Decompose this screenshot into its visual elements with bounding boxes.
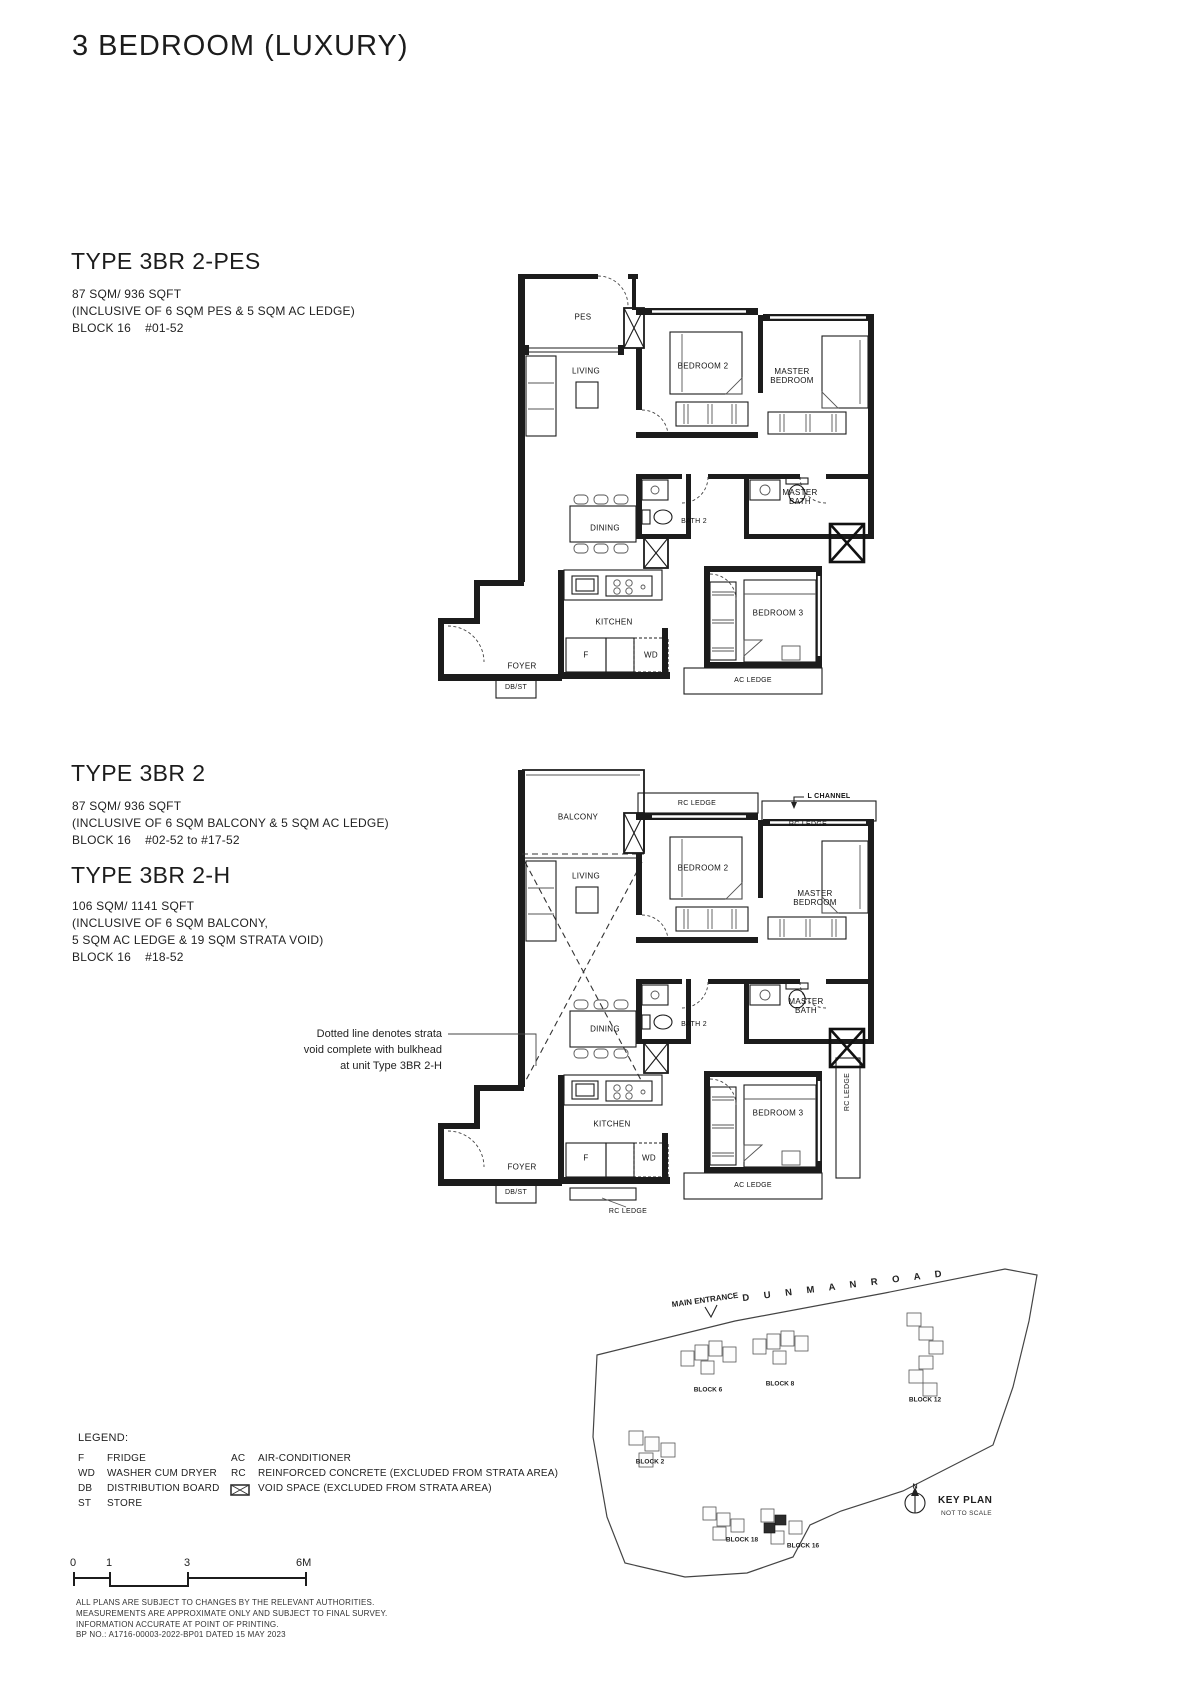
disclaimer-line-3: INFORMATION ACCURATE AT POINT OF PRINTIN… (76, 1620, 387, 1631)
plan1-room-bedroom3: BEDROOM 3 (753, 608, 804, 617)
plan2-room-bedroom2: BEDROOM 2 (678, 863, 729, 872)
plan2-room-living: LIVING (572, 871, 600, 880)
plan1-room-master-bath: MASTER BATH (778, 488, 822, 506)
floorplan-page: { "title": "3 BEDROOM (LUXURY)", "types"… (0, 0, 1190, 1684)
type3-area: 106 SQM/ 1141 SQFT (72, 898, 323, 915)
keyplan-block12-buildings (907, 1313, 943, 1396)
type3-inclusive-1: (INCLUSIVE OF 6 SQM BALCONY, (72, 915, 323, 932)
legend-abbr-st: ST (78, 1498, 91, 1509)
keyplan-block16-label: BLOCK 16 (787, 1543, 819, 1550)
keyplan-block12-label: BLOCK 12 (909, 1397, 941, 1404)
legend-term-fridge: FRIDGE (107, 1453, 146, 1464)
disclaimer-line-1: ALL PLANS ARE SUBJECT TO CHANGES BY THE … (76, 1598, 387, 1609)
plan2-room-master-bath: MASTER BATH (784, 997, 828, 1015)
void-space-icon (230, 1484, 250, 1496)
keyplan-block2-label: BLOCK 2 (636, 1459, 665, 1466)
legend-term-store: STORE (107, 1498, 142, 1509)
legend-heading: LEGEND: (78, 1432, 128, 1444)
scale-tick-0: 0 (70, 1557, 76, 1569)
plan1-room-bath2: BATH 2 (681, 518, 707, 526)
scale-tick-1: 1 (106, 1557, 112, 1569)
floorplan-type-3br2-drawing (430, 706, 890, 1221)
keyplan-block16-buildings (761, 1509, 802, 1544)
plan2-fridge-label: F (583, 1153, 588, 1162)
plan2-rc-ledge-bottom-label: RC LEDGE (609, 1208, 647, 1216)
keyplan-highlighted-unit (775, 1515, 786, 1525)
keyplan-note: NOT TO SCALE (941, 1510, 992, 1517)
legend-abbr-f: F (78, 1453, 84, 1464)
page-title: 3 BEDROOM (LUXURY) (72, 30, 409, 63)
legend-term-ac: AIR-CONDITIONER (258, 1453, 351, 1464)
plan2-room-balcony: BALCONY (558, 812, 598, 821)
type2-inclusive: (INCLUSIVE OF 6 SQM BALCONY & 5 SQM AC L… (72, 815, 389, 832)
plan1-room-foyer: FOYER (507, 661, 536, 670)
plan2-rc-ledge-right-label: RC LEDGE (789, 821, 827, 829)
type1-area: 87 SQM/ 936 SQFT (72, 286, 355, 303)
floorplan-type-3br2pes-drawing (430, 236, 890, 706)
plan1-wd-label: WD (644, 650, 658, 659)
type2-block-stack: BLOCK 16 #02-52 to #17-52 (72, 832, 389, 849)
type1-details: 87 SQM/ 936 SQFT (INCLUSIVE OF 6 SQM PES… (72, 286, 355, 337)
legend-abbr-rc: RC (231, 1468, 246, 1479)
plan1-room-pes: PES (575, 312, 592, 321)
type3-heading: TYPE 3BR 2-H (71, 862, 230, 889)
plan1-fridge-label: F (583, 650, 588, 659)
plan1-room-living: LIVING (572, 366, 600, 375)
plan2-room-kitchen: KITCHEN (593, 1119, 630, 1128)
scalebar-drawing (70, 1570, 320, 1594)
keyplan-block18-buildings (703, 1507, 744, 1540)
legend-abbr-ac: AC (231, 1453, 245, 1464)
legend-term-void: VOID SPACE (EXCLUDED FROM STRATA AREA) (258, 1483, 492, 1494)
plan2-room-bedroom3: BEDROOM 3 (753, 1108, 804, 1117)
plan1-room-dining: DINING (590, 523, 620, 532)
keyplan-block8-buildings (753, 1331, 808, 1364)
type2-heading: TYPE 3BR 2 (71, 760, 205, 787)
legend-abbr-wd: WD (78, 1468, 95, 1479)
keyplan-block8-label: BLOCK 8 (766, 1381, 795, 1388)
plan1-room-master-bedroom: MASTER BEDROOM (764, 367, 820, 385)
plan2-room-master-bedroom: MASTER BEDROOM (787, 889, 843, 907)
plan2-rc-ledge-side-label: RC LEDGE (844, 1073, 852, 1111)
plan2-ac-ledge-label: AC LEDGE (734, 1182, 772, 1190)
plan1-dbst-label: DB/ST (505, 684, 527, 692)
type1-heading: TYPE 3BR 2-PES (71, 248, 261, 275)
disclaimer-line-2: MEASUREMENTS ARE APPROXIMATE ONLY AND SU… (76, 1609, 387, 1620)
keyplan-block6-label: BLOCK 6 (694, 1387, 723, 1394)
plan1-room-bedroom2: BEDROOM 2 (678, 361, 729, 370)
plan2-room-foyer: FOYER (507, 1162, 536, 1171)
plan2-dbst-label: DB/ST (505, 1189, 527, 1197)
scale-tick-3: 3 (184, 1557, 190, 1569)
type3-inclusive-2: 5 SQM AC LEDGE & 19 SQM STRATA VOID) (72, 932, 323, 949)
plan1-room-kitchen: KITCHEN (595, 617, 632, 626)
keyplan-drawing (585, 1255, 1075, 1585)
type2-details: 87 SQM/ 936 SQFT (INCLUSIVE OF 6 SQM BAL… (72, 798, 389, 849)
scale-tick-6m: 6M (296, 1557, 311, 1569)
type2-area: 87 SQM/ 936 SQFT (72, 798, 389, 815)
legend-term-db: DISTRIBUTION BOARD (107, 1483, 220, 1494)
plan1-ac-ledge-label: AC LEDGE (734, 677, 772, 685)
plan2-wd-label: WD (642, 1153, 656, 1162)
keyplan-block18-label: BLOCK 18 (726, 1537, 758, 1544)
main-entrance-arrow-icon (705, 1305, 717, 1317)
north-arrow-icon (905, 1487, 925, 1513)
legend-abbr-db: DB (78, 1483, 92, 1494)
legend-term-rc: REINFORCED CONCRETE (EXCLUDED FROM STRAT… (258, 1468, 558, 1479)
keyplan-title: KEY PLAN (938, 1495, 992, 1506)
plan2-room-bath2: BATH 2 (681, 1021, 707, 1029)
legend-term-washer: WASHER CUM DRYER (107, 1468, 217, 1479)
plan2-l-channel-label: L CHANNEL (807, 793, 850, 801)
keyplan-block6-buildings (681, 1341, 736, 1374)
plan2-room-dining: DINING (590, 1024, 620, 1033)
disclaimer: ALL PLANS ARE SUBJECT TO CHANGES BY THE … (76, 1598, 387, 1641)
strata-void-annotation: Dotted line denotes strata void complete… (304, 1026, 442, 1074)
keyplan-north-label: N (912, 1484, 917, 1491)
type3-details: 106 SQM/ 1141 SQFT (INCLUSIVE OF 6 SQM B… (72, 898, 323, 966)
type3-block-stack: BLOCK 16 #18-52 (72, 949, 323, 966)
type1-inclusive: (INCLUSIVE OF 6 SQM PES & 5 SQM AC LEDGE… (72, 303, 355, 320)
plan2-rc-ledge-top-label: RC LEDGE (678, 800, 716, 808)
disclaimer-line-4: BP NO.: A1716-00003-2022-BP01 DATED 15 M… (76, 1630, 387, 1641)
type1-block-stack: BLOCK 16 #01-52 (72, 320, 355, 337)
